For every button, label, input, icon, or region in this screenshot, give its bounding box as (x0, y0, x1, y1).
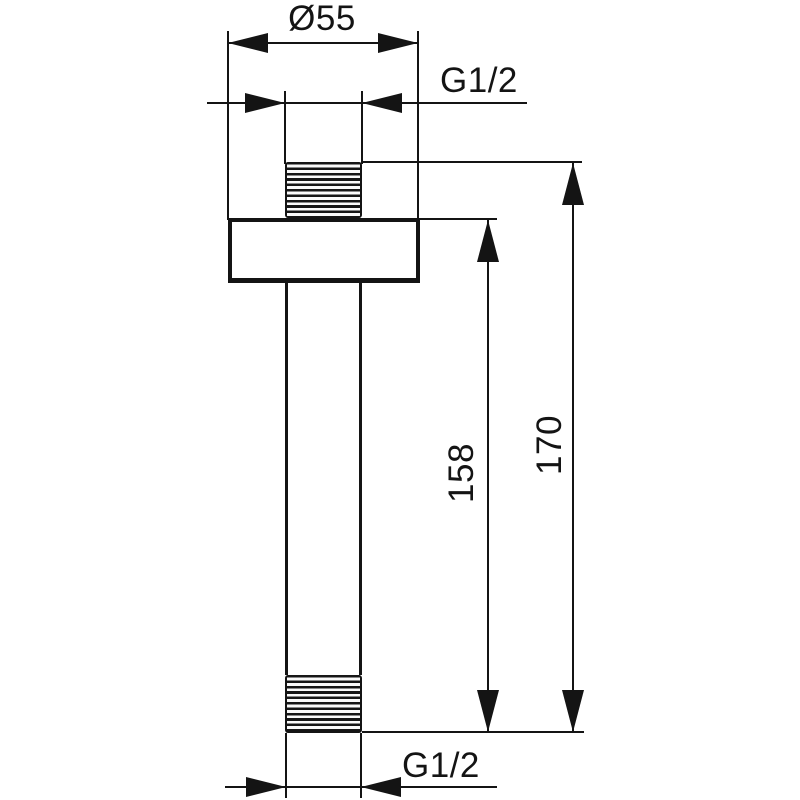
dim-label-length-158: 158 (442, 438, 482, 508)
dim-label-thread-top: G1/2 (440, 63, 518, 99)
dim-label-thread-bottom: G1/2 (402, 748, 480, 784)
dim-flange-diameter (228, 31, 418, 220)
dim-label-flange-diameter: Ø55 (250, 1, 394, 37)
dim-label-length-170: 170 (530, 410, 570, 480)
technical-drawing-canvas: Ø55 G1/2 158 170 G1/2 (0, 0, 800, 800)
dim-thread-top (207, 91, 527, 164)
dimension-lines (0, 0, 800, 800)
